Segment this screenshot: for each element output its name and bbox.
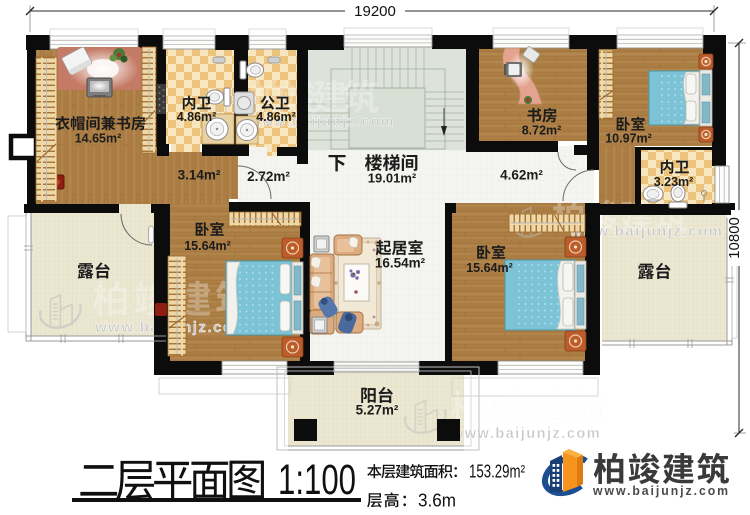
svg-text:4.86m²: 4.86m²: [256, 110, 296, 124]
svg-text:10800: 10800: [726, 217, 743, 259]
svg-text:2.72m²: 2.72m²: [247, 169, 290, 184]
svg-text:8.72m²: 8.72m²: [522, 124, 562, 138]
svg-text:4.86m²: 4.86m²: [177, 110, 217, 124]
svg-text:5.27m²: 5.27m²: [356, 402, 399, 417]
svg-text:15.64m²: 15.64m²: [466, 261, 513, 275]
svg-text:3.14m²: 3.14m²: [178, 167, 221, 182]
svg-text:153.29m²: 153.29m²: [469, 462, 525, 482]
svg-text:3.23m²: 3.23m²: [654, 175, 694, 189]
svg-text:10.97m²: 10.97m²: [605, 132, 652, 146]
svg-text:4.62m²: 4.62m²: [500, 167, 543, 182]
svg-text:19.01m²: 19.01m²: [368, 171, 417, 186]
svg-text:www.baijunjz.com: www.baijunjz.com: [592, 484, 730, 498]
svg-text:19200: 19200: [354, 3, 396, 20]
svg-text:16.54m²: 16.54m²: [375, 255, 426, 270]
svg-text:14.65m²: 14.65m²: [75, 132, 122, 146]
svg-text:1:100: 1:100: [278, 456, 356, 504]
svg-text:3.6m: 3.6m: [418, 491, 456, 511]
svg-text:www.baijunjz.com: www.baijunjz.com: [451, 426, 601, 442]
svg-text:15.64m²: 15.64m²: [184, 239, 231, 253]
